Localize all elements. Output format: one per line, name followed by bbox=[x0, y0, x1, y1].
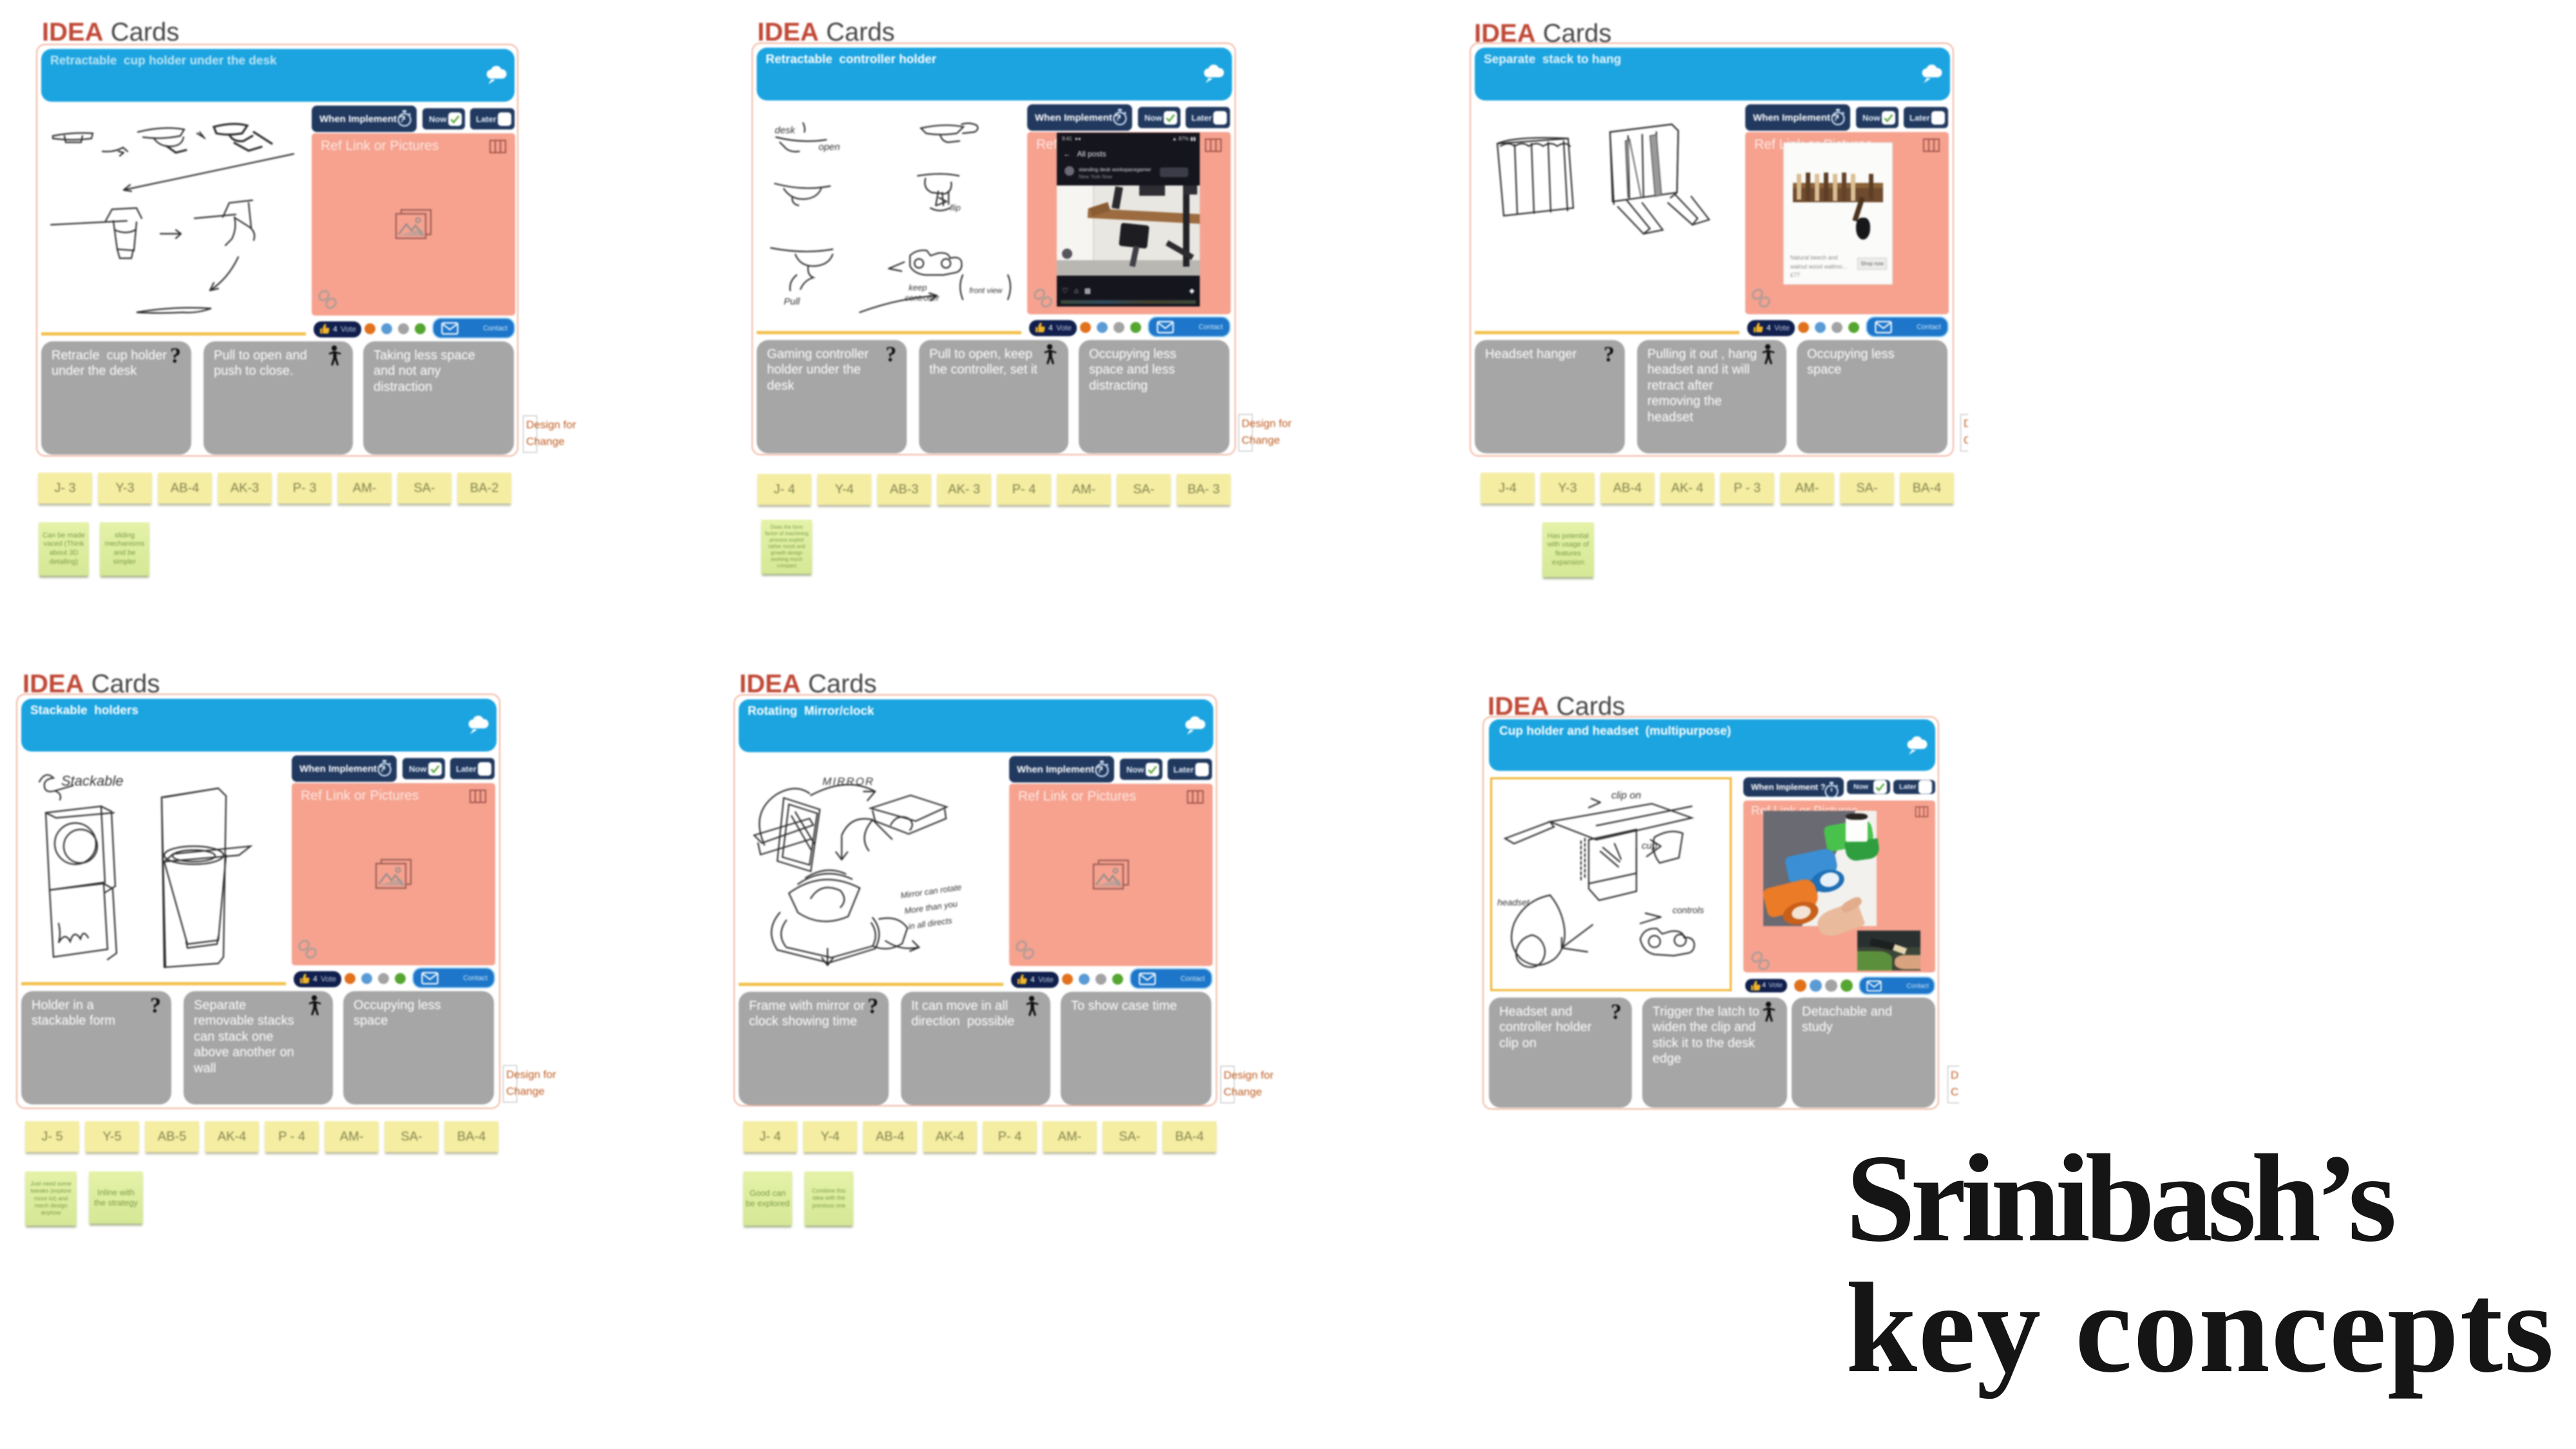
svg-text:Pull: Pull bbox=[784, 296, 800, 307]
svg-text:Mirror can rotate: Mirror can rotate bbox=[900, 882, 962, 900]
svg-text:controls: controls bbox=[1672, 905, 1704, 915]
svg-text:MIRROR: MIRROR bbox=[822, 775, 875, 788]
svg-text:More than you: More than you bbox=[904, 899, 958, 916]
svg-text:Stackable: Stackable bbox=[61, 773, 124, 789]
svg-text:keep: keep bbox=[909, 283, 927, 292]
svg-text:desk: desk bbox=[775, 125, 796, 136]
svg-text:flip: flip bbox=[950, 203, 961, 213]
svg-text:in all directs: in all directs bbox=[907, 915, 953, 931]
svg-text:headset: headset bbox=[1497, 897, 1530, 907]
svg-text:clip on: clip on bbox=[1611, 790, 1641, 801]
svg-text:open: open bbox=[819, 142, 840, 153]
svg-text:front view: front view bbox=[969, 286, 1003, 295]
